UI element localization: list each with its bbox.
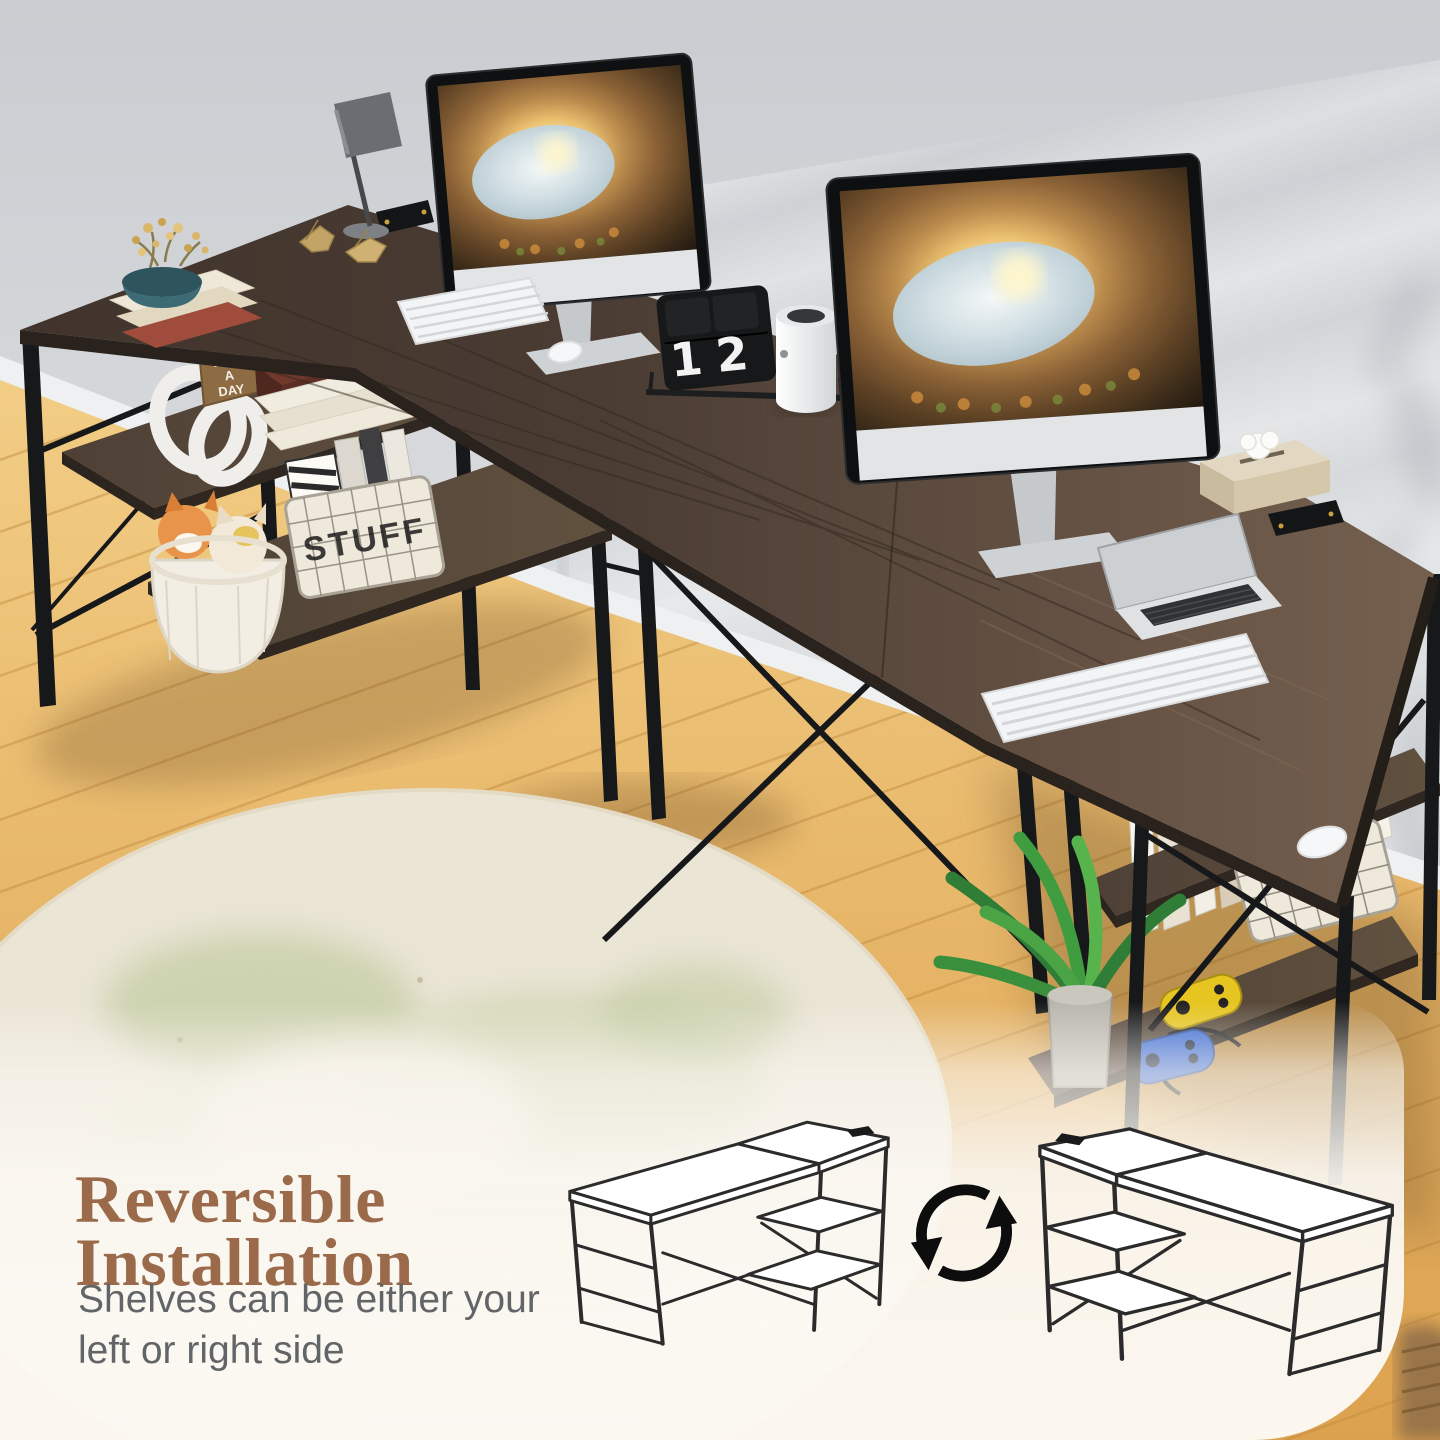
clock-digits: 12 [668,324,765,387]
subheadline-line2: left or right side [78,1325,540,1376]
subheadline-line1: Shelves can be either your [78,1274,540,1325]
rotation-arrows-icon [905,1172,1023,1290]
plush-toy-basket [152,490,284,672]
flip-clock: 12 [655,284,776,391]
subheadline: Shelves can be either your left or right… [78,1274,540,1377]
marketing-overlay: Reversible Installation Shelves can be e… [0,1002,1404,1440]
desk-sketch-left [552,1094,908,1362]
product-image: ONE LINE A DAY [0,0,1440,1440]
desk-sketch-right [1018,1098,1412,1394]
headline-line1: Reversible [75,1168,414,1232]
speaker [773,305,839,415]
